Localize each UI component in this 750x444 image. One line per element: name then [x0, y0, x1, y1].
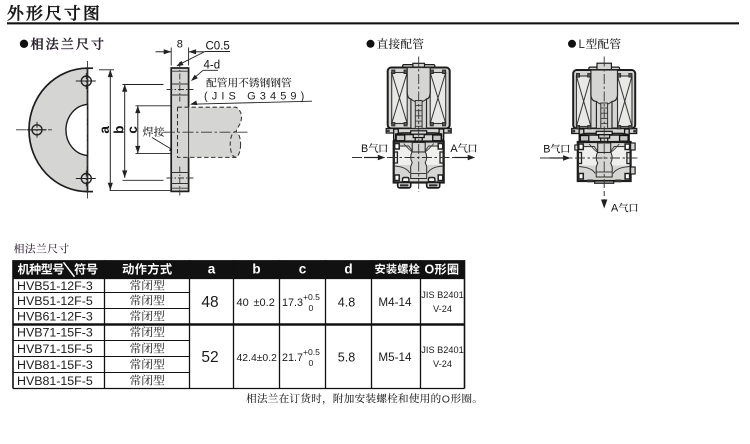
svg-text:c: c — [299, 262, 307, 277]
svg-text:+0.5: +0.5 — [303, 292, 320, 302]
svg-text:JIS B2401: JIS B2401 — [421, 345, 463, 355]
svg-text:HVB71-15F-3: HVB71-15F-3 — [17, 326, 93, 340]
svg-text:HVB71-15F-5: HVB71-15F-5 — [17, 342, 93, 356]
svg-text:A: A — [450, 143, 458, 155]
svg-text:L: L — [579, 39, 586, 51]
svg-text:M5-14: M5-14 — [378, 351, 412, 364]
svg-text:M4-14: M4-14 — [378, 296, 412, 309]
svg-text:4-d: 4-d — [204, 59, 221, 71]
svg-text:5.8: 5.8 — [338, 350, 356, 364]
svg-text:A: A — [611, 203, 619, 215]
svg-text:a: a — [97, 126, 112, 134]
svg-text:0: 0 — [309, 358, 314, 368]
svg-text:±0.2: ±0.2 — [254, 297, 275, 309]
svg-text:21.7: 21.7 — [282, 352, 303, 364]
svg-text:HVB51-12F-5: HVB51-12F-5 — [17, 294, 93, 308]
svg-text:V-24: V-24 — [433, 304, 452, 314]
svg-text:4.8: 4.8 — [338, 295, 356, 309]
svg-text:+0.5: +0.5 — [303, 347, 320, 357]
svg-text:8: 8 — [177, 39, 183, 51]
svg-text:O: O — [425, 263, 435, 277]
svg-text:17.3: 17.3 — [282, 297, 303, 309]
svg-text:c: c — [125, 126, 140, 134]
svg-text:48: 48 — [201, 294, 218, 311]
svg-text:V-24: V-24 — [433, 359, 452, 369]
svg-text:B: B — [361, 143, 368, 155]
svg-text:52: 52 — [201, 349, 218, 366]
svg-text:0: 0 — [309, 303, 314, 313]
svg-text:b: b — [252, 262, 260, 277]
svg-text:(JIS G3459): (JIS G3459) — [204, 91, 308, 103]
svg-text:d: d — [344, 262, 352, 277]
svg-text:42.4±0.2: 42.4±0.2 — [237, 353, 278, 364]
svg-text:HVB81-15F-5: HVB81-15F-5 — [17, 374, 93, 388]
svg-text:O: O — [442, 393, 450, 405]
svg-text:a: a — [208, 262, 216, 277]
svg-text:40: 40 — [237, 297, 249, 309]
svg-text:HVB51-12F-3: HVB51-12F-3 — [17, 279, 93, 293]
svg-text:B: B — [543, 143, 550, 155]
svg-text:HVB81-15F-3: HVB81-15F-3 — [17, 358, 93, 372]
svg-text:C0.5: C0.5 — [206, 40, 230, 52]
svg-text:HVB61-12F-3: HVB61-12F-3 — [17, 310, 93, 324]
svg-text:JIS B2401: JIS B2401 — [421, 290, 463, 300]
